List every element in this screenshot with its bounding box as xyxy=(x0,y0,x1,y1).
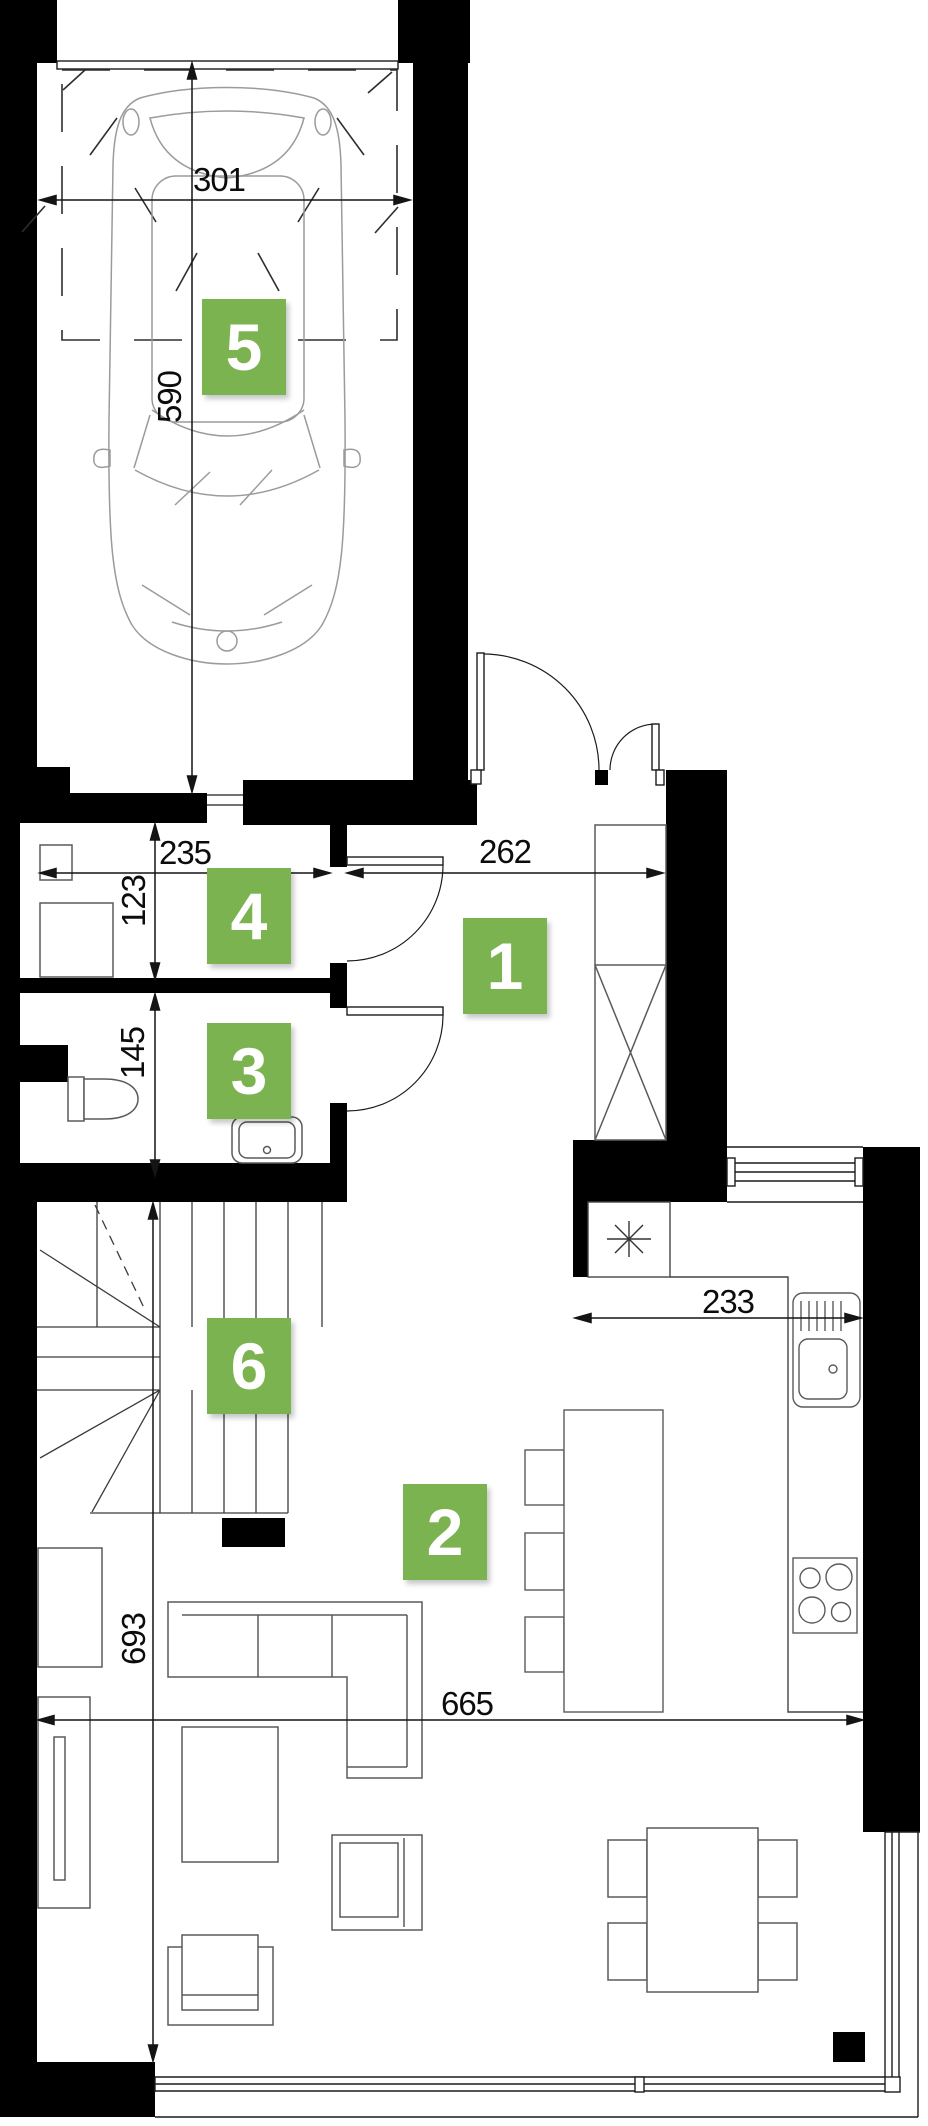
room-label-2: 2 xyxy=(403,1484,487,1580)
window-north-kitchen xyxy=(727,1147,863,1202)
armchair-bottom xyxy=(168,1935,273,2025)
dim-living-depth: 693 xyxy=(115,1613,153,1665)
room-label-5: 5 xyxy=(202,299,286,395)
dim-wc-depth: 145 xyxy=(114,1027,152,1079)
entrance-door-side xyxy=(610,724,664,785)
toilet-icon xyxy=(68,1077,138,1121)
dim-garage-width: 301 xyxy=(193,161,245,199)
room-label-4: 4 xyxy=(207,868,291,964)
dining-chair xyxy=(608,1923,647,1980)
dim-kitchen-width: 233 xyxy=(702,1283,754,1321)
bar-stool xyxy=(525,1533,564,1590)
dim-utility-width: 235 xyxy=(159,834,211,872)
tv-icon xyxy=(54,1737,65,1880)
coffee-table xyxy=(182,1727,278,1862)
kitchen-island xyxy=(525,1410,663,1712)
room-label-6: 6 xyxy=(207,1318,291,1414)
boiler-closet xyxy=(588,1202,670,1277)
stair-wall-stub xyxy=(222,1518,285,1547)
garage-house-passage xyxy=(207,793,243,823)
kitchen-fixtures xyxy=(525,1202,863,1712)
door-room3 xyxy=(347,1007,443,1111)
bar-stool xyxy=(525,1617,564,1672)
entrance-door-main xyxy=(471,653,599,784)
tv-cabinet xyxy=(38,1548,102,1908)
dim-utility-depth: 123 xyxy=(115,875,153,927)
dim-living-width: 665 xyxy=(441,1685,493,1723)
dining-table xyxy=(647,1828,758,1992)
armchair-right xyxy=(332,1835,422,1930)
bar-stool xyxy=(525,1450,564,1505)
dining-chair xyxy=(608,1840,647,1897)
utility-cabinets xyxy=(40,845,113,977)
floor-plan: 301 590 235 262 123 145 233 693 665 5 4 … xyxy=(0,0,928,2126)
dim-garage-depth: 590 xyxy=(151,371,189,423)
cooktop-icon xyxy=(793,1558,857,1633)
window-south xyxy=(155,2077,918,2117)
dining-set xyxy=(608,1828,797,1992)
garage-door xyxy=(57,61,398,69)
dim-hall-width: 262 xyxy=(479,833,531,871)
kitchen-sink-icon xyxy=(793,1293,860,1407)
washbasin-icon xyxy=(232,1117,302,1163)
dining-chair xyxy=(758,1840,797,1897)
room-label-1: 1 xyxy=(463,918,547,1014)
room-label-3: 3 xyxy=(207,1023,291,1119)
window-east xyxy=(885,1832,920,2117)
dining-chair xyxy=(758,1923,797,1980)
column xyxy=(833,2032,865,2062)
